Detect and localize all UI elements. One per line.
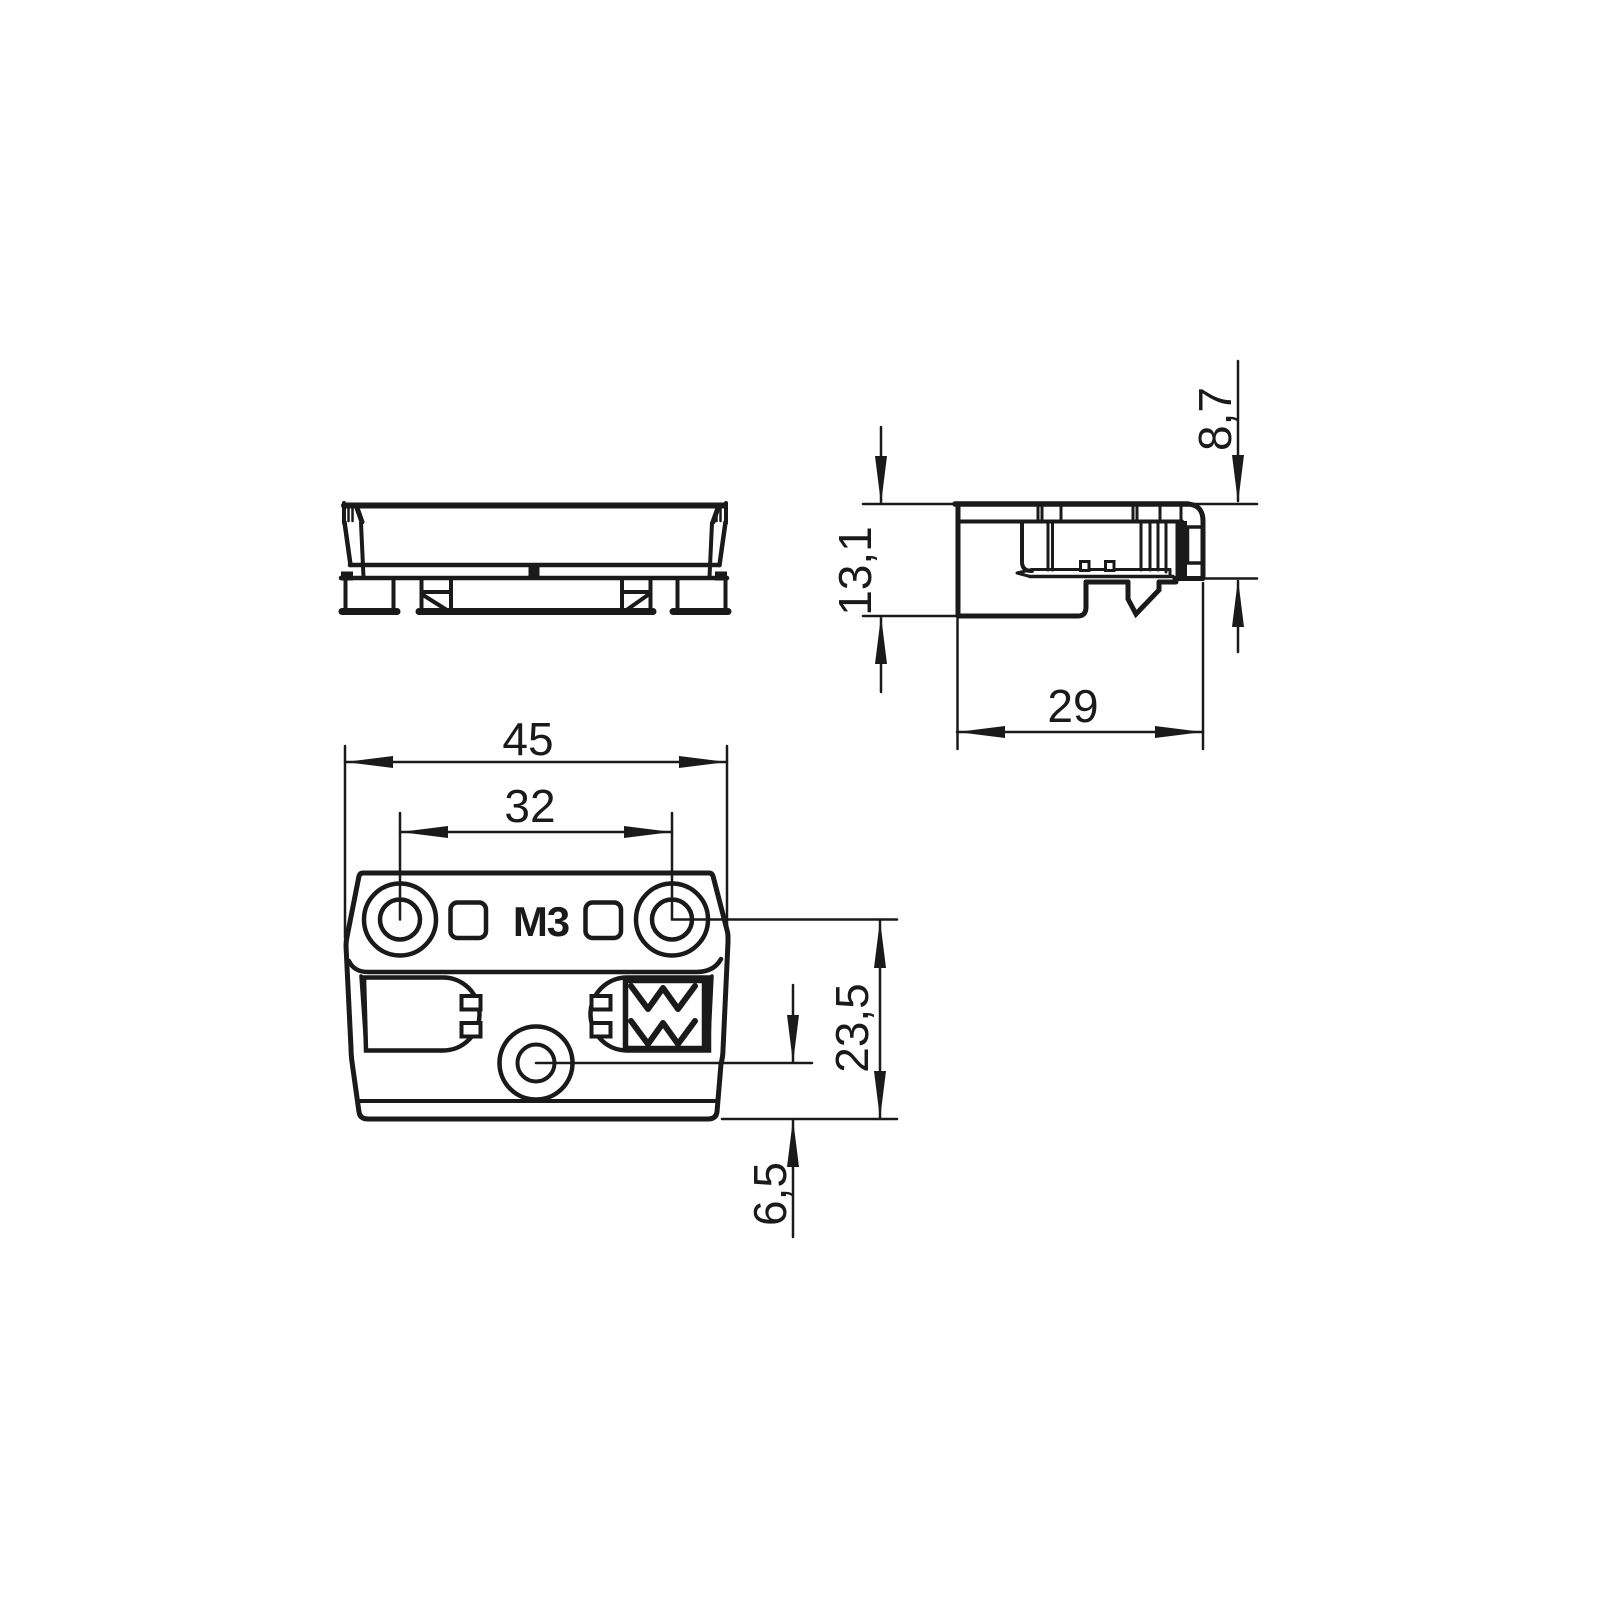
dim-label-13-1: 13,1 bbox=[829, 526, 881, 616]
technical-drawing-page: 45 32 29 13,1 8,7 23,5 6,5 M3 bbox=[0, 0, 1600, 1600]
square-window-right bbox=[586, 903, 622, 939]
rail-center-notch bbox=[529, 564, 540, 579]
dim-label-6-5: 6,5 bbox=[744, 1162, 796, 1226]
left-pocket bbox=[364, 978, 479, 1051]
dimension-drawing: 45 32 29 13,1 8,7 23,5 6,5 M3 bbox=[0, 0, 1600, 1600]
square-window-left bbox=[451, 903, 487, 939]
thread-size-label: M3 bbox=[513, 898, 569, 945]
dim-label-32: 32 bbox=[504, 780, 555, 832]
dim-label-8-7: 8,7 bbox=[1189, 387, 1241, 451]
dim-label-45: 45 bbox=[502, 713, 553, 765]
dim-label-29: 29 bbox=[1047, 680, 1098, 732]
drawing-background bbox=[0, 0, 1600, 1600]
dim-label-23-5: 23,5 bbox=[826, 983, 878, 1073]
